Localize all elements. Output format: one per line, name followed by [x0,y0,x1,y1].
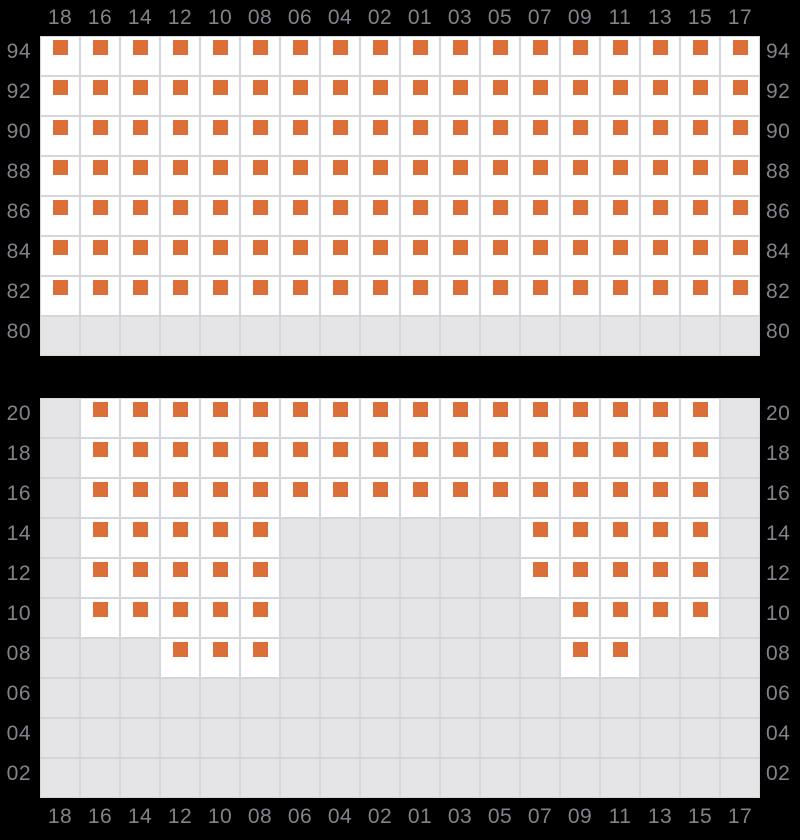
seat-cell-available[interactable] [480,196,520,236]
seat-cell-available[interactable] [640,36,680,76]
row-label: 82 [760,276,800,316]
seat-available-icon [173,80,188,95]
seat-cell-available[interactable] [360,36,400,76]
seat-cell-available[interactable] [240,518,280,558]
seat-cell-available[interactable] [320,156,360,196]
seat-cell-available[interactable] [600,196,640,236]
seat-cell-available[interactable] [240,638,280,678]
seat-cell-available[interactable] [120,116,160,156]
seat-cell-available[interactable] [120,518,160,558]
seat-available-icon [573,240,588,255]
seat-cell-available[interactable] [440,196,480,236]
seat-cell-available[interactable] [200,36,240,76]
seat-cell-available[interactable] [560,76,600,116]
seat-cell-available[interactable] [80,76,120,116]
seat-cell-available[interactable] [640,196,680,236]
seat-available-icon [373,482,388,497]
seat-available-icon [613,200,628,215]
seat-cell-available[interactable] [320,276,360,316]
seat-available-icon [653,482,668,497]
seat-available-icon [133,402,148,417]
seat-cell-available[interactable] [160,36,200,76]
seat-cell-blocked [480,316,520,356]
seat-available-icon [493,442,508,457]
seat-cell-available[interactable] [600,398,640,438]
seat-cell-available[interactable] [160,398,200,438]
seat-cell-available[interactable] [240,116,280,156]
seat-cell-available[interactable] [40,276,80,316]
seat-cell-available[interactable] [360,236,400,276]
seat-cell-available[interactable] [160,638,200,678]
seat-available-icon [613,40,628,55]
seat-cell-available[interactable] [240,36,280,76]
seat-available-icon [253,240,268,255]
seat-cell-available[interactable] [200,276,240,316]
seat-cell-available[interactable] [480,398,520,438]
seat-cell-available[interactable] [640,398,680,438]
seat-available-icon [133,482,148,497]
seat-cell-available[interactable] [480,438,520,478]
seat-cell-available[interactable] [240,276,280,316]
seat-cell-blocked [600,678,640,718]
seat-cell-available[interactable] [440,76,480,116]
seat-cell-available[interactable] [720,276,760,316]
seat-cell-blocked [280,718,320,758]
seat-cell-available[interactable] [520,36,560,76]
seat-available-icon [93,160,108,175]
seat-cell-available[interactable] [720,196,760,236]
seat-cell-blocked [40,758,80,798]
seat-available-icon [93,120,108,135]
seat-cell-available[interactable] [200,196,240,236]
seat-available-icon [213,40,228,55]
seat-cell-blocked [320,598,360,638]
column-label: 08 [240,7,280,36]
row-labels-right-upper: 9492908886848280 [760,36,800,356]
seat-cell-available[interactable] [640,156,680,196]
seat-available-icon [653,602,668,617]
seat-available-icon [653,160,668,175]
seat-available-icon [573,402,588,417]
seat-cell-available[interactable] [200,438,240,478]
seat-cell-available[interactable] [240,398,280,438]
seat-cell-available[interactable] [360,276,400,316]
seat-cell-available[interactable] [680,478,720,518]
seat-cell-available[interactable] [360,156,400,196]
seat-cell-available[interactable] [480,116,520,156]
seat-available-icon [213,402,228,417]
seat-cell-available[interactable] [280,398,320,438]
seat-cell-available[interactable] [600,76,640,116]
column-label: 14 [120,798,160,827]
seat-cell-available[interactable] [680,518,720,558]
seat-available-icon [413,442,428,457]
seat-available-icon [453,80,468,95]
seat-cell-available[interactable] [200,236,240,276]
seat-cell-available[interactable] [560,438,600,478]
seat-cell-available[interactable] [400,438,440,478]
seat-available-icon [133,80,148,95]
seat-cell-available[interactable] [400,76,440,116]
seat-available-icon [53,40,68,55]
seat-cell-available[interactable] [120,478,160,518]
seat-cell-available[interactable] [200,638,240,678]
seat-cell-available[interactable] [640,76,680,116]
seat-cell-available[interactable] [640,478,680,518]
seat-cell-available[interactable] [440,276,480,316]
seat-cell-available[interactable] [600,276,640,316]
seat-cell-blocked [440,678,480,718]
seat-cell-available[interactable] [600,36,640,76]
seat-cell-available[interactable] [560,36,600,76]
seat-cell-available[interactable] [240,156,280,196]
seat-available-icon [253,642,268,657]
seat-cell-available[interactable] [720,236,760,276]
seat-cell-available[interactable] [400,398,440,438]
seat-cell-available[interactable] [320,398,360,438]
seat-cell-available[interactable] [280,236,320,276]
seat-panel-upper: 181614121008060402010305070911131517 949… [0,0,800,356]
seat-cell-available[interactable] [480,236,520,276]
seat-available-icon [173,522,188,537]
seat-cell-available[interactable] [200,398,240,438]
seat-available-icon [693,442,708,457]
seat-cell-available[interactable] [520,518,560,558]
seat-cell-available[interactable] [160,276,200,316]
seat-cell-available[interactable] [680,196,720,236]
seat-cell-available[interactable] [640,116,680,156]
seat-cell-available[interactable] [40,236,80,276]
seat-available-icon [173,602,188,617]
seat-cell-available[interactable] [600,156,640,196]
seat-cell-available[interactable] [680,236,720,276]
seat-cell-available[interactable] [240,196,280,236]
seat-cell-available[interactable] [480,36,520,76]
seat-cell-available[interactable] [40,196,80,236]
seat-cell-available[interactable] [120,196,160,236]
seat-cell-available[interactable] [320,36,360,76]
seat-available-icon [493,240,508,255]
seat-cell-available[interactable] [720,156,760,196]
column-label: 15 [680,7,720,36]
seat-cell-available[interactable] [520,196,560,236]
seat-cell-available[interactable] [360,438,400,478]
seat-cell-available[interactable] [360,116,400,156]
seat-cell-available[interactable] [80,36,120,76]
seat-cell-blocked [440,316,480,356]
seat-available-icon [373,160,388,175]
seat-cell-available[interactable] [560,276,600,316]
seat-cell-blocked [400,758,440,798]
row-label: 94 [760,36,800,76]
seat-cell-available[interactable] [80,398,120,438]
row-label: 02 [760,758,800,798]
seat-cell-available[interactable] [80,518,120,558]
seat-cell-blocked [520,638,560,678]
seat-available-icon [53,160,68,175]
seat-cell-available[interactable] [280,76,320,116]
seat-available-icon [93,482,108,497]
seat-cell-available[interactable] [440,438,480,478]
seat-cell-available[interactable] [520,398,560,438]
seat-cell-available[interactable] [280,478,320,518]
seat-available-icon [293,280,308,295]
seat-cell-available[interactable] [520,478,560,518]
seat-cell-available[interactable] [240,558,280,598]
seat-available-icon [333,280,348,295]
row-label: 06 [760,678,800,718]
seat-cell-available[interactable] [280,156,320,196]
seat-available-icon [253,80,268,95]
seat-cell-available[interactable] [120,276,160,316]
row-label: 84 [0,236,40,276]
seat-cell-available[interactable] [160,518,200,558]
seat-cell-available[interactable] [120,558,160,598]
seat-available-icon [573,522,588,537]
seat-cell-available[interactable] [680,398,720,438]
seat-available-icon [493,200,508,215]
seat-cell-available[interactable] [560,156,600,196]
seat-cell-available[interactable] [160,438,200,478]
seat-available-icon [573,562,588,577]
seat-cell-available[interactable] [280,438,320,478]
seat-available-icon [453,200,468,215]
seat-cell-available[interactable] [400,276,440,316]
seat-available-icon [573,642,588,657]
seat-available-icon [93,402,108,417]
seat-cell-available[interactable] [360,478,400,518]
seat-cell-available[interactable] [160,598,200,638]
seat-cell-available[interactable] [160,156,200,196]
seat-cell-available[interactable] [320,236,360,276]
seat-cell-available[interactable] [160,196,200,236]
seat-cell-available[interactable] [680,36,720,76]
seat-cell-available[interactable] [200,558,240,598]
seat-available-icon [373,40,388,55]
seat-cell-available[interactable] [320,196,360,236]
column-label: 06 [280,798,320,827]
seat-cell-available[interactable] [680,76,720,116]
seat-cell-available[interactable] [80,116,120,156]
seat-cell-available[interactable] [440,398,480,438]
seat-cell-blocked [520,758,560,798]
seat-cell-available[interactable] [560,196,600,236]
seat-cell-available[interactable] [520,116,560,156]
seat-cell-available[interactable] [680,438,720,478]
seat-cell-blocked [280,638,320,678]
row-label: 80 [760,316,800,356]
seat-available-icon [653,120,668,135]
seat-cell-available[interactable] [200,598,240,638]
seat-cell-available[interactable] [560,236,600,276]
seat-cell-available[interactable] [600,236,640,276]
seat-cell-available[interactable] [400,116,440,156]
seat-cell-blocked [80,316,120,356]
seat-cell-available[interactable] [80,236,120,276]
seat-available-icon [533,120,548,135]
seat-cell-available[interactable] [80,598,120,638]
seat-cell-available[interactable] [160,558,200,598]
seat-cell-available[interactable] [640,598,680,638]
seat-available-icon [693,40,708,55]
seat-available-icon [293,80,308,95]
seat-cell-available[interactable] [640,438,680,478]
seat-cell-available[interactable] [400,478,440,518]
seat-cell-available[interactable] [400,196,440,236]
seat-cell-available[interactable] [560,558,600,598]
seat-cell-available[interactable] [120,236,160,276]
seat-cell-available[interactable] [200,478,240,518]
seat-cell-available[interactable] [360,76,400,116]
row-label: 08 [760,638,800,678]
seat-cell-available[interactable] [120,398,160,438]
seat-cell-blocked [80,758,120,798]
seat-cell-available[interactable] [520,236,560,276]
seat-cell-available[interactable] [440,236,480,276]
seat-cell-available[interactable] [480,76,520,116]
row-label: 04 [0,718,40,758]
seat-cell-available[interactable] [360,196,400,236]
seat-cell-available[interactable] [160,76,200,116]
seat-cell-blocked [40,678,80,718]
seat-cell-available[interactable] [240,438,280,478]
seat-cell-available[interactable] [320,438,360,478]
seat-available-icon [413,160,428,175]
seat-cell-available[interactable] [80,558,120,598]
seat-cell-available[interactable] [560,116,600,156]
seat-cell-available[interactable] [240,598,280,638]
seat-cell-available[interactable] [680,156,720,196]
seat-cell-available[interactable] [600,558,640,598]
seat-cell-available[interactable] [360,398,400,438]
seat-cell-available[interactable] [480,276,520,316]
seat-cell-available[interactable] [280,116,320,156]
seat-cell-available[interactable] [80,156,120,196]
row-label: 12 [0,558,40,598]
seat-cell-available[interactable] [640,236,680,276]
seat-cell-available[interactable] [680,276,720,316]
seat-cell-available[interactable] [120,36,160,76]
seat-cell-available[interactable] [680,558,720,598]
seat-cell-available[interactable] [440,36,480,76]
seat-cell-available[interactable] [480,478,520,518]
seat-cell-available[interactable] [320,116,360,156]
seat-cell-available[interactable] [160,116,200,156]
seat-cell-available[interactable] [720,76,760,116]
seat-cell-blocked [360,718,400,758]
seat-cell-available[interactable] [720,36,760,76]
seat-cell-available[interactable] [480,156,520,196]
seat-cell-available[interactable] [520,76,560,116]
seat-cell-available[interactable] [40,116,80,156]
seat-cell-blocked [200,316,240,356]
seat-cell-available[interactable] [320,76,360,116]
seat-available-icon [373,280,388,295]
seat-available-icon [653,562,668,577]
seat-cell-blocked [80,638,120,678]
seat-cell-available[interactable] [680,116,720,156]
seat-cell-available[interactable] [160,236,200,276]
seat-cell-available[interactable] [240,478,280,518]
seat-cell-available[interactable] [600,598,640,638]
seat-available-icon [573,482,588,497]
seat-cell-available[interactable] [520,276,560,316]
seat-cell-available[interactable] [200,76,240,116]
seat-cell-available[interactable] [280,196,320,236]
seat-cell-available[interactable] [400,156,440,196]
seat-cell-available[interactable] [520,558,560,598]
seat-cell-blocked [160,758,200,798]
seat-cell-available[interactable] [400,236,440,276]
seat-cell-available[interactable] [280,276,320,316]
seat-cell-available[interactable] [720,116,760,156]
seat-cell-available[interactable] [640,558,680,598]
seat-cell-available[interactable] [640,276,680,316]
seat-cell-available[interactable] [240,76,280,116]
seat-cell-available[interactable] [200,518,240,558]
seat-cell-available[interactable] [80,196,120,236]
seat-cell-available[interactable] [40,36,80,76]
seat-cell-available[interactable] [120,76,160,116]
seat-available-icon [733,40,748,55]
seat-cell-available[interactable] [520,438,560,478]
seat-cell-available[interactable] [600,478,640,518]
seat-cell-available[interactable] [520,156,560,196]
seat-cell-available[interactable] [80,478,120,518]
seat-cell-available[interactable] [200,116,240,156]
seat-cell-available[interactable] [560,598,600,638]
seat-cell-available[interactable] [560,518,600,558]
seat-available-icon [293,442,308,457]
seat-cell-available[interactable] [440,478,480,518]
seat-cell-available[interactable] [560,398,600,438]
seat-cell-available[interactable] [440,156,480,196]
seat-cell-available[interactable] [400,36,440,76]
seat-available-icon [613,522,628,537]
seat-available-icon [213,240,228,255]
seat-cell-available[interactable] [600,518,640,558]
seat-cell-available[interactable] [120,438,160,478]
seat-cell-available[interactable] [120,598,160,638]
seat-cell-available[interactable] [40,156,80,196]
seat-cell-available[interactable] [280,36,320,76]
row-label: 16 [0,478,40,518]
seat-cell-available[interactable] [40,76,80,116]
seat-cell-available[interactable] [560,638,600,678]
seat-cell-available[interactable] [600,116,640,156]
row-label: 92 [0,76,40,116]
seat-cell-available[interactable] [600,438,640,478]
seat-cell-available[interactable] [560,478,600,518]
seat-cell-available[interactable] [440,116,480,156]
seat-available-icon [93,200,108,215]
seat-cell-available[interactable] [160,478,200,518]
seat-available-icon [213,120,228,135]
seat-cell-available[interactable] [640,518,680,558]
seat-cell-available[interactable] [120,156,160,196]
seat-cell-available[interactable] [680,598,720,638]
seat-cell-available[interactable] [240,236,280,276]
seat-cell-blocked [40,398,80,438]
seat-cell-available[interactable] [320,478,360,518]
seat-available-icon [173,280,188,295]
seat-cell-available[interactable] [80,438,120,478]
seat-cell-blocked [360,316,400,356]
seat-available-icon [173,120,188,135]
seat-cell-available[interactable] [80,276,120,316]
seat-cell-available[interactable] [200,156,240,196]
seat-cell-available[interactable] [600,638,640,678]
